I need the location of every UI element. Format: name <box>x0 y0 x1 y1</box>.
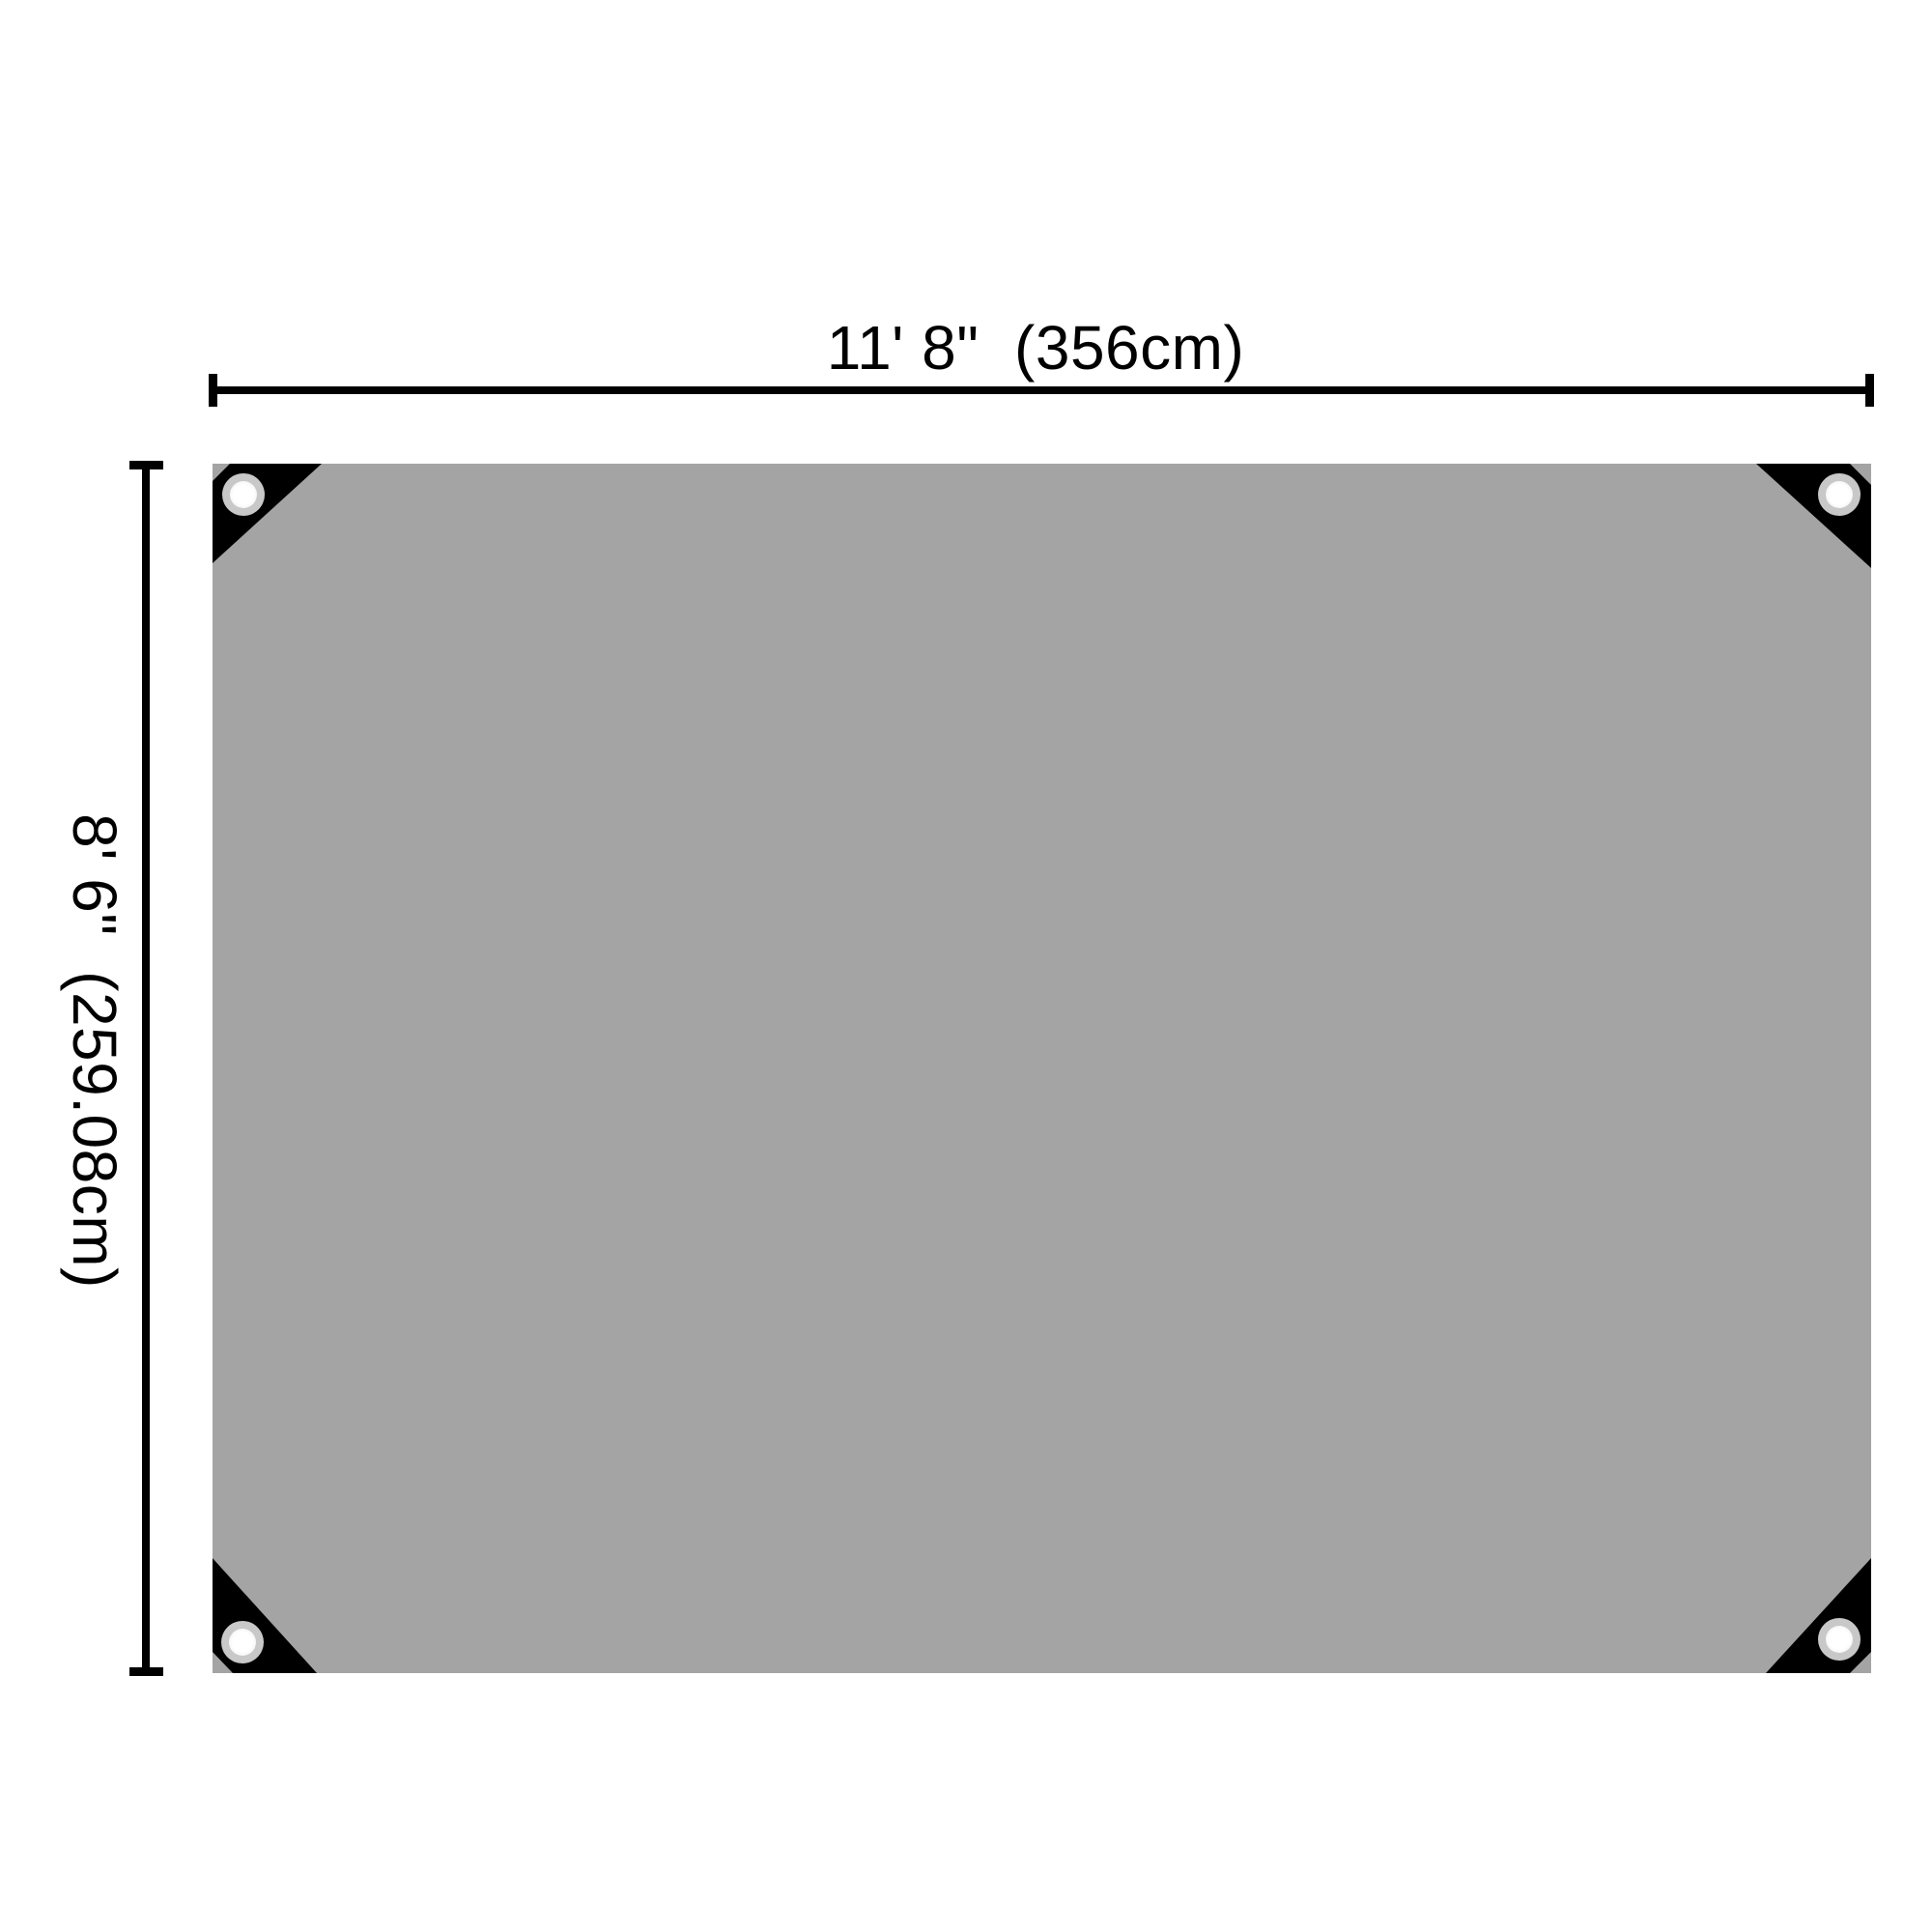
width-dimension-line <box>213 386 1870 394</box>
tarp-sheet <box>213 464 1871 1673</box>
corner-patch-bottom-right <box>1766 1558 1871 1673</box>
grommet-icon-top-right <box>1818 473 1861 516</box>
grommet-icon-bottom-left <box>221 1621 264 1663</box>
width-dimension-label: 11' 8" (356cm) <box>827 317 1245 379</box>
height-dimension-tick-top <box>129 461 163 469</box>
grommet-hole-top-left <box>230 481 257 508</box>
grommet-icon-top-left <box>222 473 265 516</box>
grommet-hole-top-right <box>1826 481 1853 508</box>
tarp-dimension-diagram: 11' 8" (356cm) 8' 6" (259.08cm) <box>0 0 1932 1932</box>
grommet-icon-bottom-right <box>1818 1618 1861 1661</box>
height-dimension-line <box>142 465 150 1672</box>
width-dimension-tick-left <box>209 374 217 407</box>
height-dimension-tick-bottom <box>129 1667 163 1676</box>
grommet-hole-bottom-right <box>1826 1626 1853 1653</box>
width-dimension-tick-right <box>1865 374 1874 407</box>
height-dimension-label: 8' 6" (259.08cm) <box>64 813 126 1289</box>
grommet-hole-bottom-left <box>229 1629 256 1656</box>
